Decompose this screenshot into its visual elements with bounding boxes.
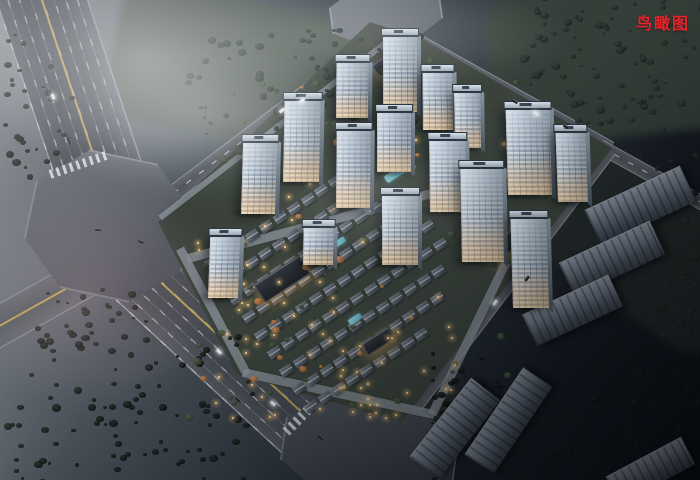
warm-light bbox=[309, 354, 311, 356]
forest-tree bbox=[675, 300, 680, 304]
forest-tree bbox=[650, 403, 658, 409]
forest-tree bbox=[659, 127, 667, 133]
warm-light bbox=[332, 297, 334, 299]
forest-tree bbox=[696, 319, 700, 322]
forest-tree bbox=[597, 364, 603, 369]
landscape-tree bbox=[324, 273, 327, 275]
forest-tree bbox=[525, 442, 529, 445]
forest-tree bbox=[197, 448, 202, 452]
forest-tree bbox=[629, 118, 635, 123]
forest-tree bbox=[676, 319, 684, 326]
landscape-tree bbox=[504, 372, 512, 378]
forest-tree bbox=[75, 463, 79, 466]
forest-tree bbox=[228, 336, 232, 339]
warm-light bbox=[246, 264, 248, 266]
warm-light bbox=[274, 414, 276, 416]
forest-tree bbox=[18, 444, 24, 448]
forest-tree bbox=[250, 392, 255, 396]
forest-tree bbox=[159, 440, 163, 444]
forest-tree bbox=[654, 309, 657, 312]
forest-tree bbox=[203, 409, 210, 415]
warm-light bbox=[387, 337, 389, 339]
forest-tree bbox=[647, 380, 651, 383]
forest-tree bbox=[656, 365, 663, 371]
forest-tree bbox=[636, 369, 645, 376]
tower-glow bbox=[507, 155, 552, 195]
forest-tree bbox=[152, 449, 159, 455]
roof-structure bbox=[519, 103, 531, 106]
landscape-tree bbox=[267, 391, 273, 395]
forest-tree bbox=[634, 393, 638, 396]
forest-tree bbox=[17, 405, 24, 411]
forest-tree bbox=[233, 416, 242, 423]
forest-tree bbox=[104, 423, 107, 425]
forest-tree bbox=[678, 100, 686, 106]
forest-tree bbox=[629, 436, 635, 441]
forest-tree bbox=[552, 450, 560, 456]
forest-tree bbox=[610, 17, 614, 20]
forest-tree bbox=[588, 442, 592, 445]
landscape-tree bbox=[394, 398, 402, 404]
forest-tree bbox=[651, 78, 658, 83]
forest-tree bbox=[448, 381, 454, 386]
forest-tree bbox=[27, 174, 34, 179]
forest-tree bbox=[200, 457, 206, 462]
forest-tree bbox=[14, 469, 18, 472]
tower-roof bbox=[375, 104, 413, 113]
forest-tree bbox=[143, 453, 147, 456]
forest-tree bbox=[668, 159, 673, 163]
warm-light bbox=[450, 389, 452, 391]
aerial-render-canvas: 鸟瞰图 bbox=[0, 0, 700, 480]
forest-tree bbox=[557, 369, 560, 372]
forest-tree bbox=[655, 166, 660, 170]
forest-tree bbox=[179, 459, 185, 464]
warm-light bbox=[342, 350, 344, 352]
landscape-tree bbox=[299, 366, 307, 372]
forest-tree bbox=[41, 427, 49, 433]
scene-layer bbox=[0, 0, 700, 480]
landscape-tree bbox=[232, 401, 237, 405]
forest-tree bbox=[163, 448, 168, 452]
tower-glow bbox=[423, 102, 453, 130]
forest-tree bbox=[115, 441, 123, 447]
forest-tree bbox=[649, 378, 652, 381]
warm-light bbox=[437, 296, 439, 298]
forest-tree bbox=[24, 166, 27, 169]
forest-tree bbox=[592, 67, 595, 69]
landscape-tree bbox=[357, 351, 363, 356]
forest-tree bbox=[544, 404, 549, 408]
forest-tree bbox=[560, 74, 566, 79]
forest-tree bbox=[591, 396, 600, 403]
forest-tree bbox=[570, 54, 576, 59]
forest-tree bbox=[606, 381, 609, 384]
forest-tree bbox=[613, 373, 617, 376]
landscape-tree bbox=[409, 316, 414, 320]
forest-tree bbox=[610, 394, 614, 397]
forest-tree bbox=[39, 458, 47, 464]
forest-tree bbox=[581, 10, 585, 13]
landscape-tree bbox=[299, 305, 304, 309]
warm-light bbox=[293, 315, 295, 317]
forest-tree bbox=[692, 254, 700, 261]
landscape-tree bbox=[228, 396, 233, 400]
warm-light bbox=[215, 402, 217, 404]
forest-tree bbox=[684, 257, 688, 261]
roof-structure bbox=[388, 106, 397, 109]
forest-tree bbox=[6, 151, 14, 157]
forest-tree bbox=[693, 153, 699, 158]
warm-light bbox=[232, 417, 234, 419]
forest-tree bbox=[565, 446, 573, 452]
forest-tree bbox=[159, 404, 167, 410]
view-label: 鸟瞰图 bbox=[636, 10, 690, 34]
tower-roof bbox=[508, 210, 548, 219]
residential-tower bbox=[555, 130, 588, 202]
warm-light bbox=[256, 343, 258, 345]
forest-tree bbox=[575, 118, 582, 124]
forest-tree bbox=[209, 455, 218, 462]
forest-tree bbox=[431, 352, 436, 356]
forest-tree bbox=[431, 366, 436, 370]
forest-tree bbox=[661, 40, 668, 45]
warm-light bbox=[283, 302, 285, 304]
tower-glow bbox=[557, 169, 588, 202]
forest-tree bbox=[596, 106, 605, 113]
forest-tree bbox=[71, 429, 75, 432]
roof-structure bbox=[220, 230, 228, 233]
forest-tree bbox=[113, 434, 118, 438]
forest-tree bbox=[578, 48, 582, 51]
forest-tree bbox=[660, 0, 666, 4]
forest-tree bbox=[12, 159, 21, 166]
forest-tree bbox=[232, 439, 240, 445]
forest-tree bbox=[635, 447, 641, 452]
warm-light bbox=[319, 281, 321, 283]
forest-tree bbox=[683, 387, 691, 394]
forest-tree bbox=[692, 46, 696, 49]
forest-tree bbox=[670, 310, 674, 314]
landscape-tree bbox=[247, 285, 253, 290]
forest-tree bbox=[589, 462, 596, 468]
fog-wisp bbox=[235, 135, 500, 260]
residential-tower bbox=[510, 216, 549, 308]
forest-tree bbox=[134, 421, 138, 424]
forest-tree bbox=[694, 399, 700, 406]
forest-tree bbox=[552, 63, 560, 69]
residential-tower bbox=[506, 107, 552, 195]
tower-glow bbox=[512, 266, 549, 308]
forest-tree bbox=[692, 222, 698, 227]
forest-tree bbox=[684, 129, 689, 133]
warm-light bbox=[322, 333, 324, 335]
tower-roof bbox=[427, 132, 467, 141]
forest-tree bbox=[633, 62, 638, 66]
forest-tree bbox=[694, 356, 700, 361]
forest-tree bbox=[114, 467, 120, 472]
forest-tree bbox=[687, 308, 695, 314]
warm-light bbox=[406, 392, 408, 394]
roof-structure bbox=[440, 134, 450, 137]
context-building bbox=[605, 437, 695, 480]
forest-tree bbox=[16, 423, 22, 428]
landscape-tree bbox=[185, 414, 193, 420]
forest-tree bbox=[551, 420, 554, 422]
forest-tree bbox=[53, 442, 59, 447]
forest-tree bbox=[611, 5, 618, 11]
forest-tree bbox=[186, 450, 190, 453]
forest-tree bbox=[208, 423, 212, 426]
forest-tree bbox=[624, 451, 628, 454]
forest-tree bbox=[681, 269, 690, 276]
forest-tree bbox=[648, 94, 654, 99]
forest-tree bbox=[234, 343, 239, 347]
roof-structure bbox=[522, 212, 532, 215]
forest-tree bbox=[545, 417, 549, 420]
landscape-tree bbox=[246, 343, 250, 347]
warm-light bbox=[340, 387, 342, 389]
forest-tree bbox=[14, 458, 19, 462]
forest-tree bbox=[633, 440, 640, 446]
forest-tree bbox=[602, 23, 608, 28]
warm-light bbox=[278, 281, 280, 283]
forest-tree bbox=[495, 380, 499, 383]
forest-tree bbox=[593, 73, 600, 79]
tower-roof bbox=[553, 124, 587, 133]
warm-light bbox=[343, 386, 345, 388]
forest-tree bbox=[220, 452, 225, 456]
forest-tree bbox=[243, 423, 249, 428]
forest-tree bbox=[497, 384, 503, 389]
forest-tree bbox=[479, 357, 483, 360]
warm-light bbox=[454, 364, 456, 366]
tower-roof bbox=[503, 101, 551, 110]
forest-tree bbox=[664, 280, 671, 286]
forest-tree bbox=[109, 420, 118, 427]
forest-tree bbox=[676, 425, 684, 432]
forest-tree bbox=[602, 32, 605, 34]
warm-light bbox=[243, 283, 245, 285]
forest-tree bbox=[570, 101, 578, 108]
landscape-tree bbox=[497, 333, 506, 340]
warm-light bbox=[261, 396, 263, 398]
forest-tree bbox=[627, 423, 633, 428]
forest-tree bbox=[566, 457, 571, 461]
forest-tree bbox=[547, 442, 551, 445]
landscape-tree bbox=[450, 370, 455, 374]
forest-tree bbox=[213, 413, 221, 419]
forest-tree bbox=[597, 121, 604, 126]
warm-light bbox=[385, 417, 387, 419]
forest-tree bbox=[533, 72, 541, 79]
forest-tree bbox=[624, 442, 630, 446]
forest-tree bbox=[175, 414, 179, 417]
forest-tree bbox=[206, 404, 210, 408]
forest-tree bbox=[684, 55, 688, 59]
forest-tree bbox=[4, 423, 12, 430]
forest-tree bbox=[21, 477, 25, 480]
forest-tree bbox=[616, 46, 625, 53]
landscape-tree bbox=[231, 316, 235, 319]
forest-tree bbox=[48, 462, 51, 465]
forest-tree bbox=[630, 400, 639, 407]
forest-tree bbox=[573, 421, 582, 428]
forest-tree bbox=[120, 455, 127, 461]
warm-light bbox=[369, 404, 371, 406]
forest-tree bbox=[458, 368, 465, 374]
warm-light bbox=[269, 416, 271, 418]
forest-tree bbox=[639, 154, 642, 157]
forest-tree bbox=[111, 454, 116, 458]
forest-tree bbox=[653, 85, 660, 90]
forest-tree bbox=[581, 406, 586, 410]
forest-tree bbox=[641, 271, 646, 275]
warm-light bbox=[445, 388, 447, 390]
forest-tree bbox=[529, 83, 532, 85]
forest-tree bbox=[437, 392, 446, 399]
forest-tree bbox=[535, 462, 540, 466]
forest-tree bbox=[658, 305, 662, 308]
forest-tree bbox=[568, 91, 575, 97]
forest-tree bbox=[597, 96, 602, 100]
